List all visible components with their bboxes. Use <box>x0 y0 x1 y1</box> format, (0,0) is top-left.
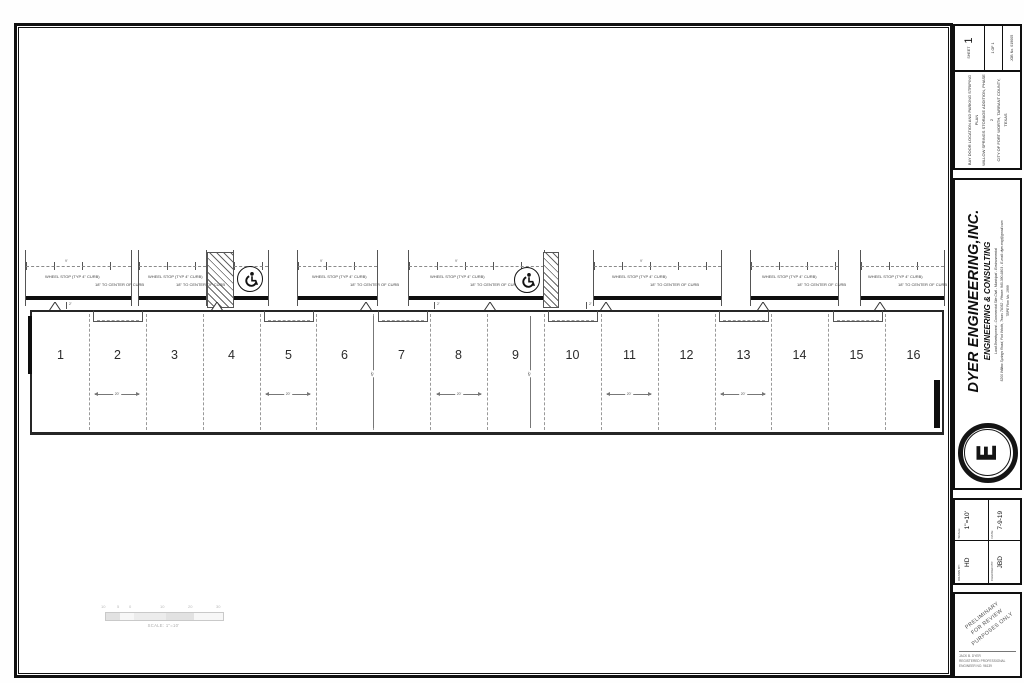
company-logo-wrap: E <box>958 418 1018 488</box>
scale-value: 1"=10' <box>964 502 971 539</box>
curb-bar <box>409 296 544 300</box>
end-wall-mark-left <box>28 316 32 374</box>
bay-width-dim-label: 20' <box>625 392 633 396</box>
project-box-rotated: BAY DOOR LOCATION AND PARKING STRIPING P… <box>955 26 1020 168</box>
company-logo-icon: E <box>958 423 1018 483</box>
bay-width-dim-label: 20' <box>284 392 292 396</box>
curb-center-note: 18" TO CENTER OF CURB <box>650 283 699 288</box>
door-offset-dim-label: 2' <box>589 302 592 306</box>
curb-center-note: 18" TO CENTER OF CURB <box>470 283 519 288</box>
bay-number: 14 <box>771 348 828 362</box>
bay-width-dim: 20' <box>721 394 765 395</box>
wheel-stop-note: WHEEL STOP (TYP 4" CURB) <box>312 275 367 280</box>
wheel-stop-note: WHEEL STOP (TYP 4" CURB) <box>762 275 817 280</box>
bay-number: 6 <box>316 348 373 362</box>
curb-bar <box>139 296 206 300</box>
bay-divider <box>316 314 317 430</box>
stripe-dash-line <box>26 266 131 267</box>
sheet-number-cell: SHEET 1 1 OF 1 JOB No. 019005 <box>955 26 1020 72</box>
drawing-sheet: WHEEL STOP (TYP 4" CURB) 18" TO CENTER O… <box>0 0 1024 683</box>
scale-cell: SCALE: 1"=10' <box>955 500 988 542</box>
bay-number: 15 <box>828 348 885 362</box>
company-address-line: 5200 Willow Springs Road, Fort Worth, Te… <box>1000 184 1004 418</box>
door-offset-dim: 2' <box>586 302 587 309</box>
stripe-spacing-dim: 9' <box>65 259 68 263</box>
bay-divider <box>828 314 829 430</box>
scale-tick-label: 20 <box>188 604 192 609</box>
bay-number: 7 <box>373 348 430 362</box>
scale-tick-label: 10 <box>160 604 164 609</box>
bay-door-notch <box>833 310 883 322</box>
scale-caption: SCALE: 1"=10' <box>105 623 222 628</box>
bay-divider <box>544 314 545 430</box>
door-offset-dim: 2' <box>434 302 435 309</box>
engineer-number: ENGINEER NO. 96139 <box>959 664 1016 669</box>
scale-segment <box>194 613 223 620</box>
preliminary-stamp: PRELIMINARY FOR REVIEW PURPOSES ONLY <box>957 595 1019 651</box>
bay-number: 11 <box>601 348 658 362</box>
wheel-stop-note: WHEEL STOP (TYP 4" CURB) <box>45 275 100 280</box>
door-offset-dim-label: 2' <box>437 302 440 306</box>
drawn-by-cell: DRAWN BY: HD <box>955 542 988 584</box>
curb-center-note: 18" TO CENTER OF CURB <box>797 283 846 288</box>
bay-number: 10 <box>544 348 601 362</box>
bay-depth-dim-label: 45' <box>527 371 531 378</box>
titleblock-project-box: BAY DOOR LOCATION AND PARKING STRIPING P… <box>953 24 1022 170</box>
bay-divider <box>146 314 147 430</box>
wheelchair-icon <box>519 272 535 288</box>
project-description: BAY DOOR LOCATION AND PARKING STRIPING P… <box>955 72 1020 168</box>
bay-divider <box>715 314 716 430</box>
bay-number: 4 <box>203 348 260 362</box>
curb-center-note: 18" TO CENTER OF CURB <box>95 283 144 288</box>
company-firm-number: TBPE Firm No. 1999 <box>1006 184 1010 418</box>
bay-divider <box>430 314 431 430</box>
date-cell: DATE: 7-9-19 <box>988 500 1021 542</box>
bay-depth-dim-label: 45' <box>370 371 374 378</box>
access-aisle-hatch <box>207 252 234 308</box>
bay-width-dim: 20' <box>266 394 310 395</box>
bay-divider <box>487 314 488 430</box>
storage-building-outline: 1 2 3 4 5 6 7 8 9 10 11 12 13 14 15 16 2… <box>30 310 944 435</box>
curb-bar <box>26 296 131 300</box>
checked-by-label: CHECKED BY: <box>990 544 994 582</box>
door-offset-dim: 2' <box>66 302 67 309</box>
bay-door-notch <box>93 310 143 322</box>
logo-letter: E <box>974 444 1001 462</box>
curb-bar <box>594 296 721 300</box>
company-name: DYER ENGINEERING,INC. <box>966 184 982 418</box>
sheet-of-label: 1 OF 1 <box>984 26 1002 70</box>
titleblock-info-box: DRAWN BY: HD SCALE: 1"=10' CHECKED BY: J… <box>953 498 1022 585</box>
checked-by-value: JBD <box>997 544 1004 582</box>
wheel-stop-note: WHEEL STOP (TYP 4" CURB) <box>148 275 203 280</box>
sheet-number: 1 <box>963 37 975 43</box>
accessible-parking-symbol <box>237 266 263 292</box>
stripe-spacing-dim: 9' <box>455 259 458 263</box>
stripe-dash-line <box>139 266 206 267</box>
bay-number: 3 <box>146 348 203 362</box>
bay-width-dim-label: 20' <box>113 392 121 396</box>
bay-number: 12 <box>658 348 715 362</box>
bay-number: 1 <box>32 348 89 362</box>
accessible-parking-symbol <box>514 267 540 293</box>
access-aisle-hatch <box>543 252 559 308</box>
company-services-line: Land Development - Commercial Site Civil… <box>994 184 998 418</box>
scale-label: SCALE: <box>957 502 961 539</box>
drawn-by-value: HD <box>964 544 971 582</box>
wheel-stop-note: WHEEL STOP (TYP 4" CURB) <box>430 275 485 280</box>
bay-width-dim: 20' <box>95 394 139 395</box>
scale-segment <box>166 613 194 620</box>
bay-door-notch <box>719 310 769 322</box>
bay-divider <box>260 314 261 430</box>
curb-bar <box>861 296 944 300</box>
bay-width-dim: 20' <box>437 394 481 395</box>
curb-bar <box>751 296 838 300</box>
bay-width-dim-label: 20' <box>455 392 463 396</box>
stripe-dash-line <box>861 266 944 267</box>
stripe-dash-line <box>751 266 838 267</box>
graphic-scale-bar <box>105 612 224 621</box>
bay-divider <box>771 314 772 430</box>
company-tagline: ENGINEERING & CONSULTING <box>983 184 992 418</box>
stripe-dash-line <box>298 266 377 267</box>
date-label: DATE: <box>990 502 994 539</box>
bay-number: 13 <box>715 348 772 362</box>
wheelchair-icon <box>242 271 258 287</box>
bay-width-dim-label: 20' <box>739 392 747 396</box>
checked-by-cell: CHECKED BY: JBD <box>988 542 1021 584</box>
curb-center-note: 18" TO CENTER OF CURB <box>898 283 947 288</box>
wheel-stop-note: WHEEL STOP (TYP 4" CURB) <box>868 275 923 280</box>
curb-bar <box>234 296 268 300</box>
scale-segment <box>120 613 134 620</box>
bay-door-notch <box>378 310 428 322</box>
bay-number: 9 <box>487 348 544 362</box>
drawn-by-label: DRAWN BY: <box>957 544 961 582</box>
curb-center-note: 18" TO CENTER OF CURB <box>350 283 399 288</box>
bay-number: 16 <box>885 348 942 362</box>
titleblock-stamp-box: PRELIMINARY FOR REVIEW PURPOSES ONLY JAC… <box>953 592 1022 678</box>
scale-tick-label: 5 <box>117 604 119 609</box>
curb-bar <box>298 296 377 300</box>
bay-width-dim: 20' <box>607 394 651 395</box>
bay-door-notch <box>548 310 598 322</box>
bay-divider <box>203 314 204 430</box>
wheel-stop-note: WHEEL STOP (TYP 4" CURB) <box>612 275 667 280</box>
stripe-spacing-dim: 9' <box>640 259 643 263</box>
scale-tick-label: 10 <box>101 604 105 609</box>
stripe-dash-line <box>594 266 721 267</box>
door-offset-dim-label: 2' <box>69 302 72 306</box>
stripe-spacing-dim: 9' <box>320 259 323 263</box>
curb-center-note: 18" TO CENTER OF CURB <box>176 283 225 288</box>
titleblock-company-box: E DYER ENGINEERING,INC. ENGINEERING & CO… <box>953 178 1022 490</box>
bay-depth-dim: 45' <box>530 316 531 428</box>
company-box-rotated: E DYER ENGINEERING,INC. ENGINEERING & CO… <box>955 180 1020 488</box>
bay-number: 2 <box>89 348 146 362</box>
info-box-rotated: DRAWN BY: HD SCALE: 1"=10' CHECKED BY: J… <box>955 500 1020 583</box>
bay-divider <box>89 314 90 430</box>
bay-divider <box>601 314 602 430</box>
project-line: WILLOW SPRINGS STORAGE ADDITION, PHASE 2 <box>980 74 994 166</box>
bay-door-notch <box>264 310 314 322</box>
scale-tick-label: 0 <box>129 604 131 609</box>
project-line: BAY DOOR LOCATION AND PARKING STRIPING P… <box>966 74 980 166</box>
project-line: CITY OF FORT WORTH, TARRANT COUNTY, TEXA… <box>995 74 1009 166</box>
bay-depth-dim: 45' <box>373 316 374 428</box>
scale-tick-label: 30 <box>216 604 220 609</box>
end-wall-mark-right <box>934 380 940 428</box>
sheet-label: SHEET <box>967 47 971 59</box>
scale-segment <box>106 613 120 620</box>
bay-divider <box>658 314 659 430</box>
bay-divider <box>885 314 886 430</box>
engineer-registration: JACK B. DYER REGISTERED PROFESSIONAL ENG… <box>959 651 1016 669</box>
bay-number: 8 <box>430 348 487 362</box>
job-number: JOB No. 019005 <box>1002 26 1020 70</box>
date-value: 7-9-19 <box>997 502 1004 539</box>
scale-segment <box>134 613 166 620</box>
bay-number: 5 <box>260 348 317 362</box>
company-text: DYER ENGINEERING,INC. ENGINEERING & CONS… <box>966 180 1010 418</box>
